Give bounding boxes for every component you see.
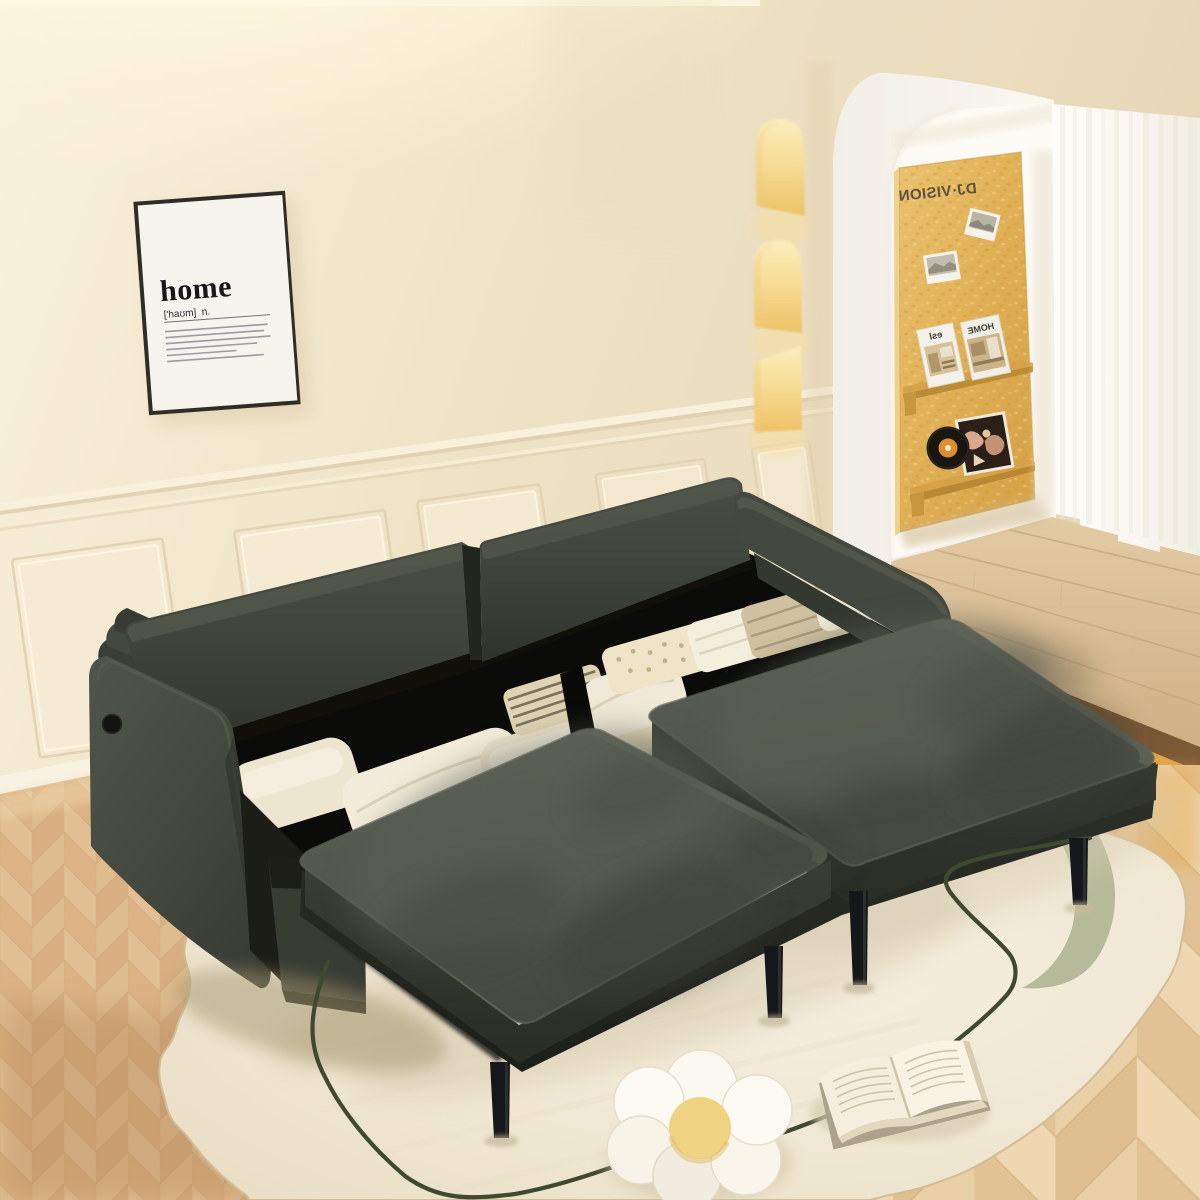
svg-text:home: home bbox=[159, 270, 233, 308]
